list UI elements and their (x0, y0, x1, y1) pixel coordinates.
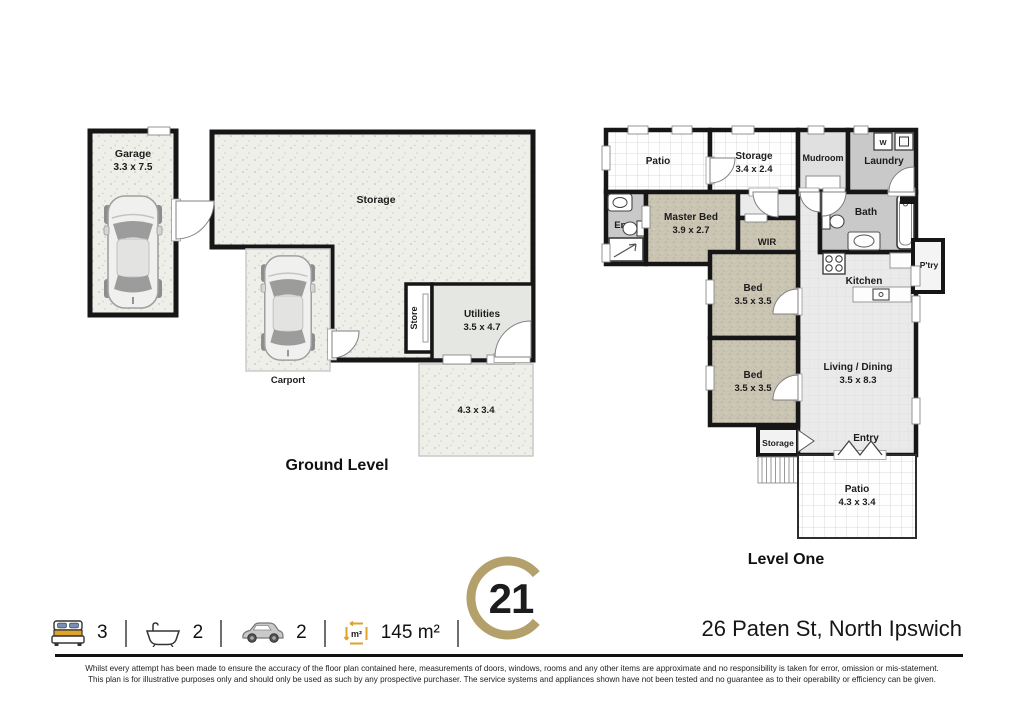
carport-label: Carport (271, 375, 306, 386)
utilities-dims: 3.5 x 4.7 (464, 322, 501, 333)
area-icon-label: m² (351, 629, 362, 639)
summary-row: 3 2 2 m² 145 m² (50, 615, 465, 651)
mudroom-label: Mudroom (803, 153, 844, 163)
separator (324, 620, 326, 647)
garage-label: Garage (115, 148, 151, 160)
divider-rule (55, 654, 963, 657)
disclaimer: Whilst every attempt has been made to en… (0, 663, 1024, 685)
room-carport: Carport (246, 249, 330, 386)
mudroom-bench (806, 176, 840, 189)
century21-logo: 21 (458, 552, 562, 648)
room-patio-top: Patio (606, 130, 710, 192)
area-value: 145 m² (381, 622, 440, 644)
beds-count: 3 (97, 622, 108, 644)
property-address: 26 Paten St, North Ipswich (702, 616, 962, 642)
cars-count: 2 (296, 622, 307, 644)
floorplan-page: Garage 3.3 x 7.5 Storage Carport Store U… (0, 0, 1024, 723)
room-patio-bottom: Patio 4.3 x 3.4 (798, 455, 916, 538)
bed-icon (50, 619, 86, 647)
level-one-plan: Patio Storage 3.4 x 2.4 Mudroom Laundry … (602, 126, 943, 568)
separator (457, 620, 459, 647)
disclaimer-line1: Whilst every attempt has been made to en… (0, 663, 1024, 674)
bed2-label: Bed (744, 370, 763, 381)
room-open-area: 4.3 x 3.4 (419, 364, 533, 456)
pantry-label: P'try (920, 260, 939, 270)
disclaimer-line2: This plan is for illustrative purposes o… (0, 674, 1024, 685)
room-garage: Garage 3.3 x 7.5 (90, 131, 176, 315)
room-ens: Ens (606, 192, 646, 264)
kitchen-counter (890, 253, 914, 268)
island-sink-icon (873, 289, 889, 300)
patio-bottom-dims: 4.3 x 3.4 (839, 497, 877, 508)
living-label: Living / Dining (824, 362, 893, 373)
separator (125, 620, 127, 647)
bath-icon (144, 619, 182, 647)
room-mudroom: Mudroom (798, 130, 848, 192)
wir-label: WIR (758, 237, 777, 248)
baths-count: 2 (193, 622, 204, 644)
logo-21-text: 21 (489, 575, 534, 622)
bath-label: Bath (855, 207, 877, 218)
master-bed-dims: 3.9 x 2.7 (673, 225, 710, 236)
stairs (758, 457, 798, 483)
patio-top-label: Patio (646, 156, 670, 167)
level-one-title: Level One (748, 551, 825, 568)
living-dims: 3.5 x 8.3 (840, 375, 877, 386)
washer-label: W (879, 138, 887, 147)
floorplan-drawing: Garage 3.3 x 7.5 Storage Carport Store U… (0, 0, 1024, 575)
ground-level-title: Ground Level (285, 457, 388, 474)
bed1-label: Bed (744, 283, 763, 294)
stove-icon (823, 253, 845, 274)
ground-level-plan: Garage 3.3 x 7.5 Storage Carport Store U… (90, 127, 533, 474)
entry-label: Entry (853, 433, 879, 444)
storage-ground-label: Storage (356, 194, 395, 206)
patio-bottom-label: Patio (845, 484, 869, 495)
laundry-label: Laundry (864, 156, 904, 167)
master-bed-label: Master Bed (664, 212, 718, 223)
separator (220, 620, 222, 647)
laundry-tub-icon (895, 133, 913, 150)
room-store: Store (406, 284, 432, 352)
kitchen-label: Kitchen (846, 276, 883, 287)
storage-small-label: Storage (762, 438, 794, 448)
garage-dims: 3.3 x 7.5 (114, 162, 153, 173)
store-label: Store (409, 306, 419, 329)
open-area-dims: 4.3 x 3.4 (458, 405, 496, 416)
storage-top-label: Storage (735, 151, 773, 162)
utilities-label: Utilities (464, 309, 501, 320)
bed2-dims: 3.5 x 3.5 (735, 383, 773, 394)
storage-top-dims: 3.4 x 2.4 (736, 164, 774, 175)
area-icon: m² (343, 620, 370, 647)
bed1-dims: 3.5 x 3.5 (735, 296, 773, 307)
car-icon (239, 620, 285, 646)
